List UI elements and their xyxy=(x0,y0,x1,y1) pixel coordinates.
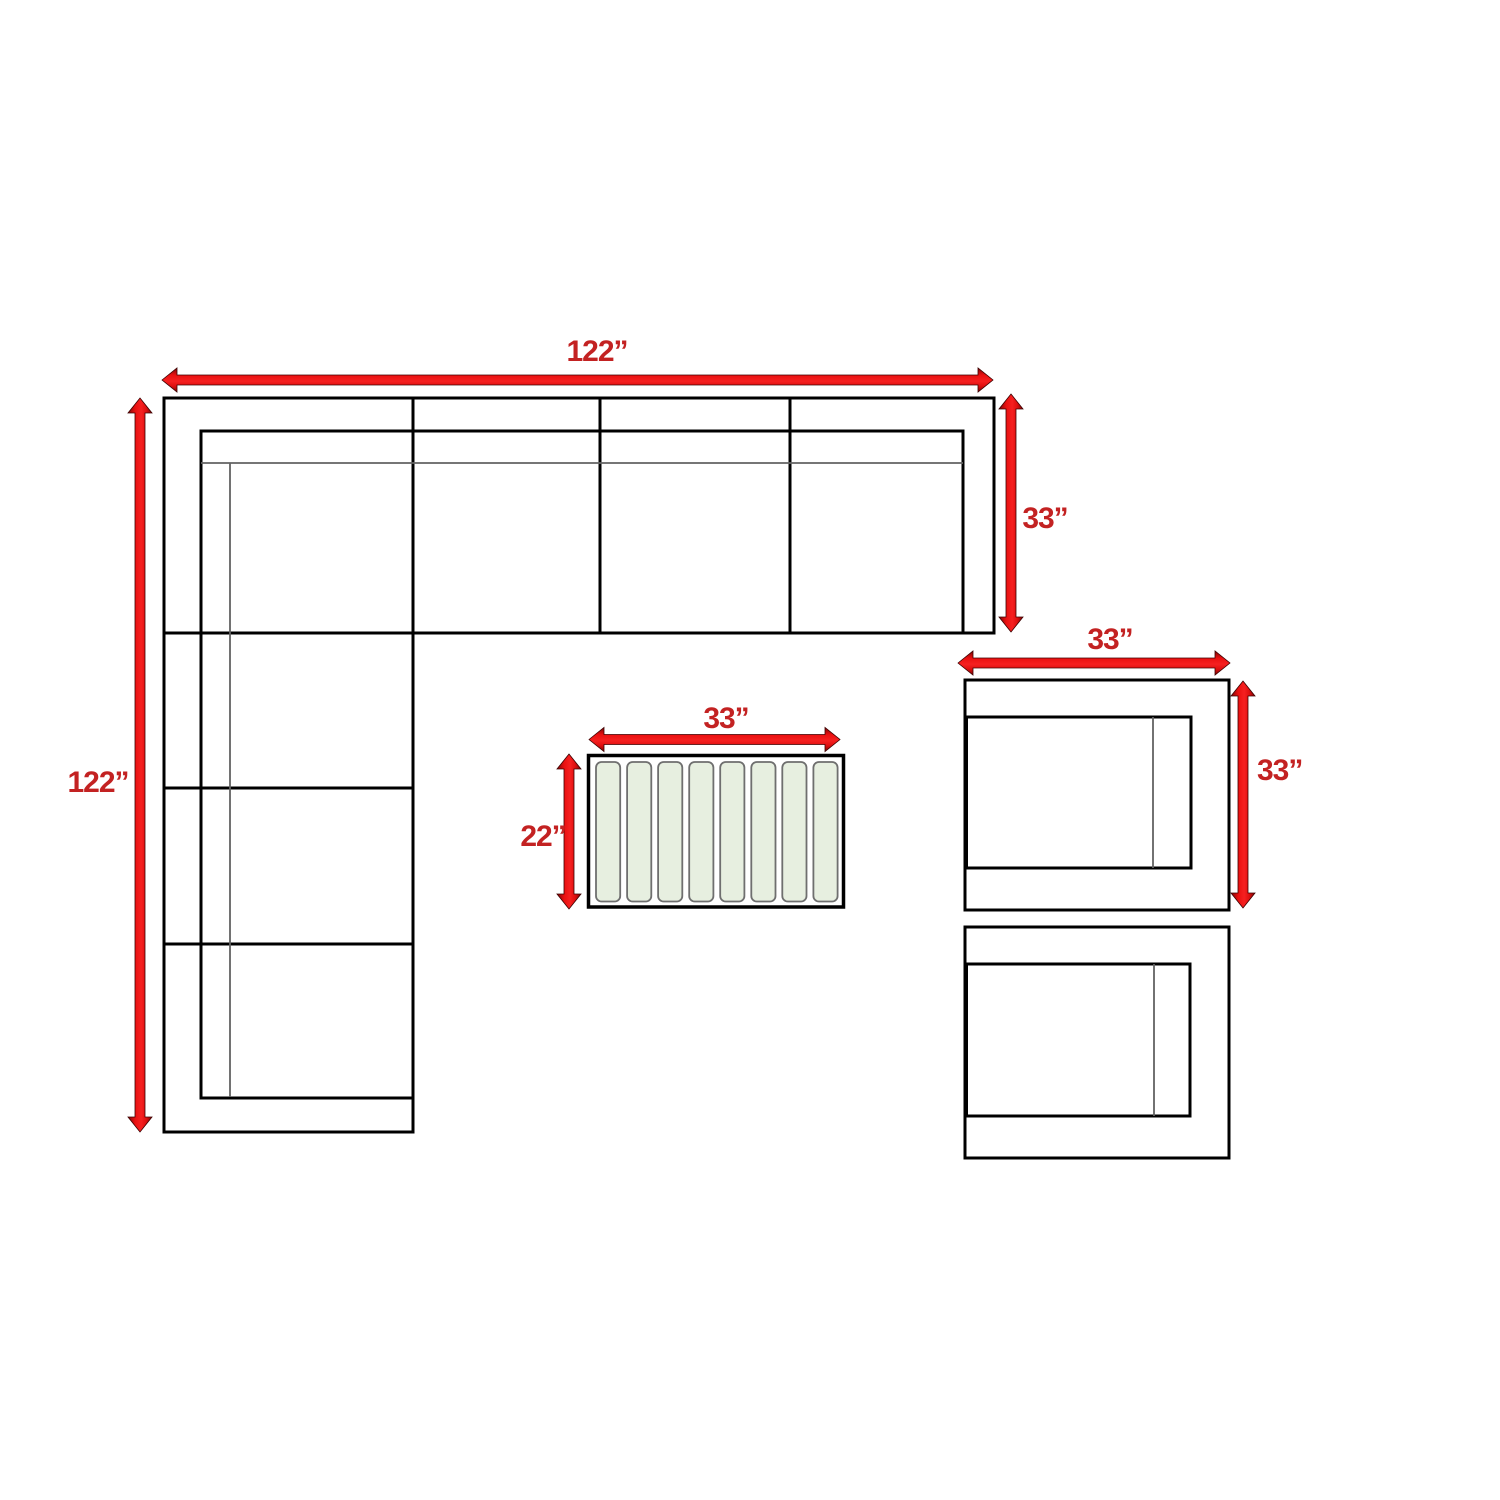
svg-text:33”: 33” xyxy=(1257,754,1302,787)
svg-text:122”: 122” xyxy=(566,335,627,368)
svg-text:33”: 33” xyxy=(703,702,748,735)
svg-text:22”: 22” xyxy=(520,820,565,853)
svg-text:122”: 122” xyxy=(67,766,128,799)
svg-text:33”: 33” xyxy=(1087,623,1132,656)
svg-text:33”: 33” xyxy=(1022,502,1067,535)
